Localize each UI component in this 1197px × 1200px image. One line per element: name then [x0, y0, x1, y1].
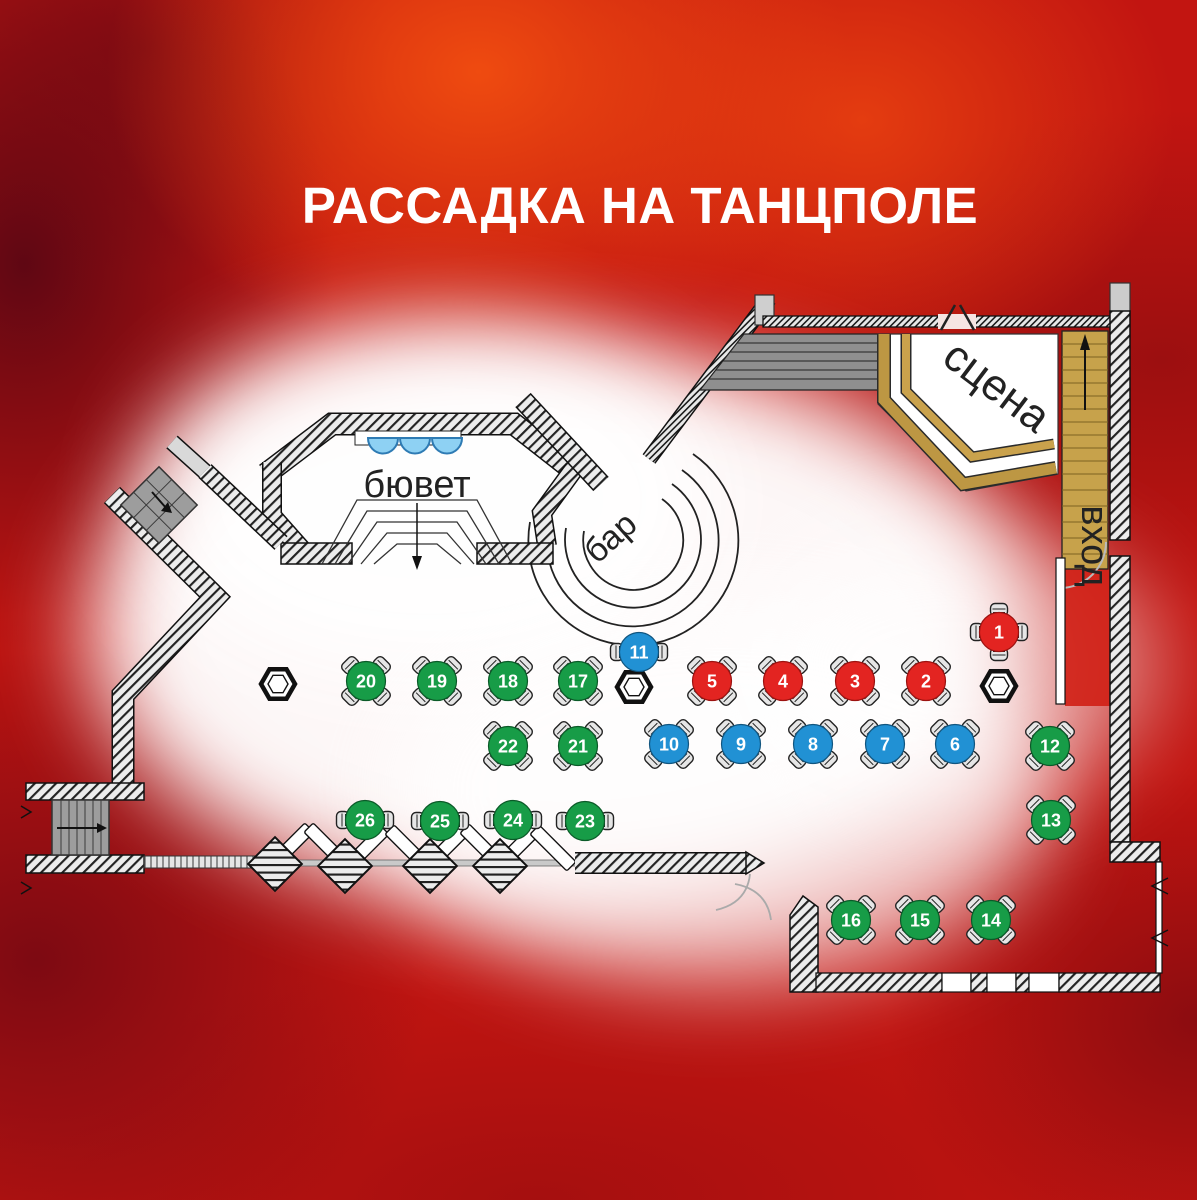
table-number: 11 — [629, 643, 648, 663]
table-9[interactable]: 9 — [715, 718, 767, 770]
table-number: 8 — [808, 735, 818, 755]
table-number: 4 — [778, 672, 788, 692]
table-number: 17 — [568, 672, 588, 692]
top-wall — [763, 305, 1112, 330]
wall-break-icon — [21, 882, 31, 894]
poster: РАССАДКА НА ТАНЦПОЛЕ — [0, 0, 1197, 1200]
buffet-label: бювет — [363, 464, 470, 506]
table-number: 22 — [498, 737, 518, 757]
table-number: 10 — [659, 735, 679, 755]
table-number: 14 — [981, 911, 1001, 931]
table-number: 24 — [503, 811, 523, 831]
table-10[interactable]: 10 — [643, 718, 695, 770]
table-number: 2 — [921, 672, 931, 692]
pillar-hexagon-icon — [617, 672, 651, 701]
table-5[interactable]: 5 — [686, 655, 738, 707]
table-number: 18 — [498, 672, 518, 692]
table-13[interactable]: 13 — [1025, 794, 1077, 846]
table-number: 3 — [850, 672, 860, 692]
table-19[interactable]: 19 — [411, 655, 463, 707]
pillar-hexagon-icon — [982, 671, 1016, 700]
table-22[interactable]: 22 — [482, 720, 534, 772]
table-6[interactable]: 6 — [929, 718, 981, 770]
table-15[interactable]: 15 — [894, 894, 946, 946]
table-number: 16 — [841, 911, 861, 931]
table-20[interactable]: 20 — [340, 655, 392, 707]
table-14[interactable]: 14 — [965, 894, 1017, 946]
table-16[interactable]: 16 — [825, 894, 877, 946]
table-number: 12 — [1040, 737, 1060, 757]
table-number: 15 — [910, 911, 930, 931]
window — [987, 973, 1016, 992]
buffet-sinks-icon — [368, 438, 462, 454]
table-3[interactable]: 3 — [829, 655, 881, 707]
table-number: 19 — [427, 672, 447, 692]
window — [942, 973, 971, 992]
table-number: 23 — [575, 812, 595, 832]
table-number: 21 — [568, 737, 588, 757]
table-18[interactable]: 18 — [482, 655, 534, 707]
table-number: 13 — [1041, 811, 1061, 831]
table-number: 1 — [994, 623, 1004, 643]
table-2[interactable]: 2 — [900, 655, 952, 707]
entrance-label: вход — [1073, 505, 1115, 586]
window — [1029, 973, 1059, 992]
table-4[interactable]: 4 — [757, 655, 809, 707]
staircase-left-lower — [52, 800, 109, 855]
table-12[interactable]: 12 — [1024, 720, 1076, 772]
table-number: 6 — [950, 735, 960, 755]
table-8[interactable]: 8 — [787, 718, 839, 770]
floor-plan: бар бю — [0, 0, 1197, 1200]
table-number: 25 — [430, 812, 450, 832]
table-number: 7 — [880, 735, 890, 755]
table-21[interactable]: 21 — [552, 720, 604, 772]
table-number: 26 — [355, 811, 375, 831]
pillar-hexagon-icon — [261, 669, 295, 698]
wall-break-icon — [21, 806, 31, 818]
table-number: 5 — [707, 672, 717, 692]
table-number: 20 — [356, 672, 376, 692]
table-7[interactable]: 7 — [859, 718, 911, 770]
table-number: 9 — [736, 735, 746, 755]
table-17[interactable]: 17 — [552, 655, 604, 707]
